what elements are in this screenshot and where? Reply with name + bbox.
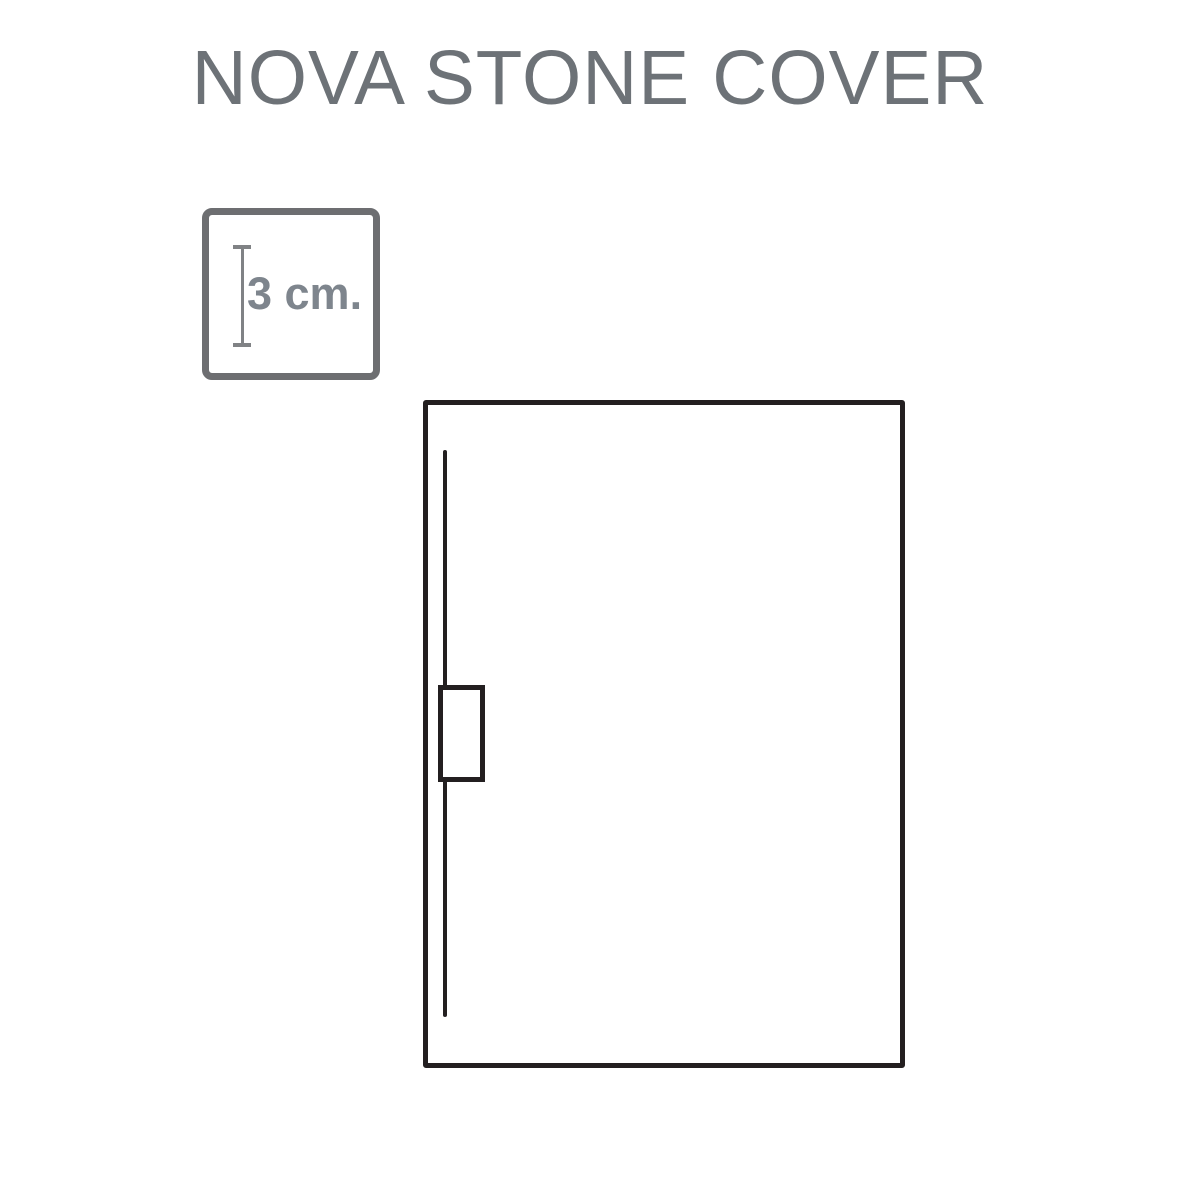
product-diagram-page: NOVA STONE COVER 3 cm. bbox=[0, 0, 1200, 1200]
tray-top-view-outline bbox=[423, 400, 905, 1068]
page-title: NOVA STONE COVER bbox=[6, 40, 1174, 117]
ruler-bar bbox=[241, 249, 244, 343]
drain-outlet-box bbox=[438, 685, 485, 782]
thickness-badge: 3 cm. bbox=[202, 208, 380, 380]
thickness-label: 3 cm. bbox=[247, 271, 362, 316]
